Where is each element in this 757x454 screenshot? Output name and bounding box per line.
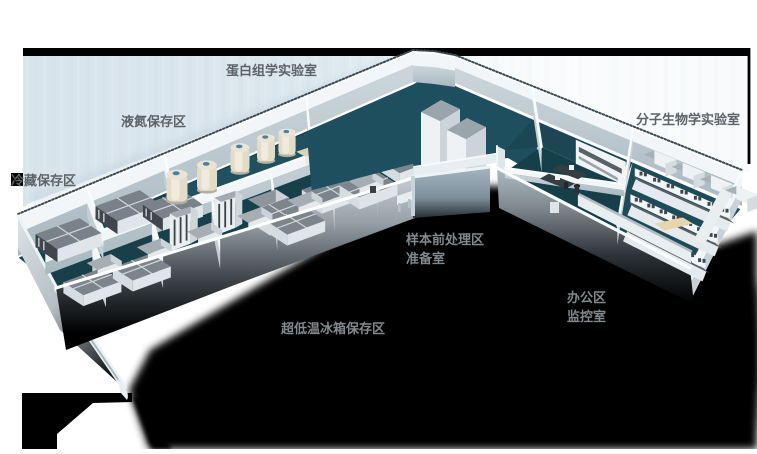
svg-text:分子生物学实验室: 分子生物学实验室 bbox=[636, 112, 740, 127]
svg-text:准备室: 准备室 bbox=[406, 251, 445, 266]
svg-text:冷藏保存区: 冷藏保存区 bbox=[11, 173, 76, 188]
svg-text:液氮保存区: 液氮保存区 bbox=[121, 114, 186, 129]
svg-text:超低温冰箱保存区: 超低温冰箱保存区 bbox=[281, 321, 385, 336]
svg-text:办公区: 办公区 bbox=[567, 290, 606, 305]
svg-text:监控室: 监控室 bbox=[567, 309, 606, 324]
svg-text:蛋白组学实验室: 蛋白组学实验室 bbox=[226, 63, 317, 78]
svg-text:样本前处理区: 样本前处理区 bbox=[406, 232, 484, 247]
